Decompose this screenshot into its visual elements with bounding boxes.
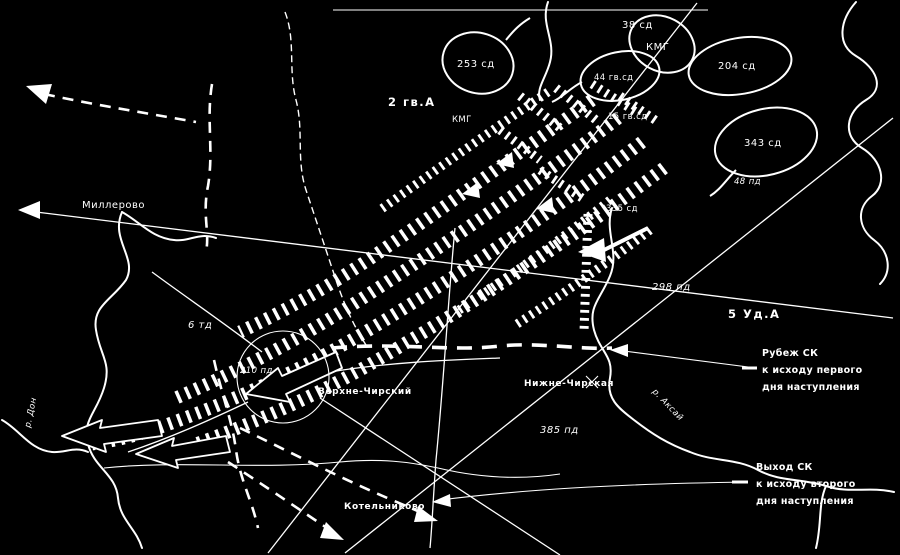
- military-map-screenshot: 2 гв.А 253 сд 38 сд КМГ 44 гв.сд 204 сд …: [0, 0, 900, 555]
- callout-2-leader: [440, 482, 748, 500]
- road-town-northwest: [152, 272, 262, 352]
- river-right-loops: [842, 2, 887, 284]
- retreat-dash-northwest: [44, 94, 196, 122]
- label-343sd: 343 сд: [744, 138, 782, 149]
- retreat-dash-south-2: [228, 462, 330, 530]
- fortified-line-vertical: [584, 214, 588, 332]
- label-millerovo: Миллерово: [82, 200, 145, 211]
- oval-343sd-tail: [710, 170, 736, 196]
- label-44gvsd: 44 гв.сд: [594, 73, 633, 83]
- oval-253sd-tail: [506, 18, 530, 40]
- callout-1-line-1: Рубеж СК: [762, 348, 818, 359]
- label-253sd: 253 сд: [457, 59, 495, 70]
- label-15gvsd: 15 гв.сд: [608, 112, 647, 122]
- callout-1-arrowhead-icon: [610, 344, 628, 357]
- front-line-center: [332, 345, 612, 348]
- label-kmg-oval: КМГ: [646, 42, 669, 53]
- label-204sd: 204 сд: [718, 61, 756, 72]
- oval-44gvsd-tail: [552, 82, 582, 102]
- label-385pd: 385 пд: [540, 425, 579, 436]
- west-road-arrowhead-icon: [18, 201, 40, 219]
- callout-2-line-2: к исходу второго: [756, 479, 856, 490]
- label-kotelnikovo: Котельниково: [344, 502, 425, 512]
- label-6td: 6 тд: [188, 320, 212, 331]
- label-210pd: 210 пд: [240, 366, 273, 376]
- label-38sd: 38 сд: [622, 20, 653, 31]
- callout-2-arrowhead-icon: [432, 494, 451, 507]
- label-kmg-center: КМГ: [452, 115, 472, 125]
- callout-leaders-group: [432, 344, 757, 507]
- road-west-east: [20, 210, 893, 318]
- river-top-stream: [539, 2, 551, 100]
- block-arrow-sw-1: [62, 420, 162, 452]
- label-48pd: 48 пд: [734, 177, 761, 187]
- callout-1-leader: [616, 350, 756, 368]
- river-west-upper: [122, 212, 216, 240]
- assault-band-4: [240, 100, 592, 332]
- callout-1: Рубеж СК к исходу первого дня наступлени…: [762, 348, 863, 393]
- river-east: [592, 208, 894, 492]
- road-north-dirt: [285, 12, 368, 348]
- northwest-arrowhead-icon: [26, 84, 52, 104]
- callout-2-line-3: дня наступления: [756, 496, 854, 507]
- label-335sd: 335 сд: [606, 204, 638, 214]
- label-river-don: р. Дон: [23, 397, 39, 430]
- military-map-svg: 2 гв.А 253 сд 38 сд КМГ 44 гв.сд 204 сд …: [0, 0, 900, 555]
- river-west: [87, 212, 142, 548]
- label-verhne: Верхне-Чирский: [318, 387, 412, 397]
- label-river-aksay: р. Аксай: [649, 386, 685, 423]
- callout-2: Выход СК к исходу второго дня наступлени…: [756, 462, 856, 507]
- block-arrow-sw-2: [136, 436, 230, 468]
- road-ne-sw: [268, 3, 697, 553]
- callout-1-line-2: к исходу первого: [762, 365, 863, 376]
- label-army-right: 5 Уд.А: [728, 307, 780, 321]
- callout-1-line-3: дня наступления: [762, 382, 860, 393]
- front-line-north: [206, 84, 212, 252]
- label-nizhne: Нижне-Чирская: [524, 379, 614, 389]
- label-298pd: 298 пд: [652, 282, 691, 293]
- solid-arrow-center-icon: [578, 238, 606, 262]
- label-army-left: 2 гв.А: [388, 95, 436, 109]
- callout-2-line-1: Выход СК: [756, 462, 813, 473]
